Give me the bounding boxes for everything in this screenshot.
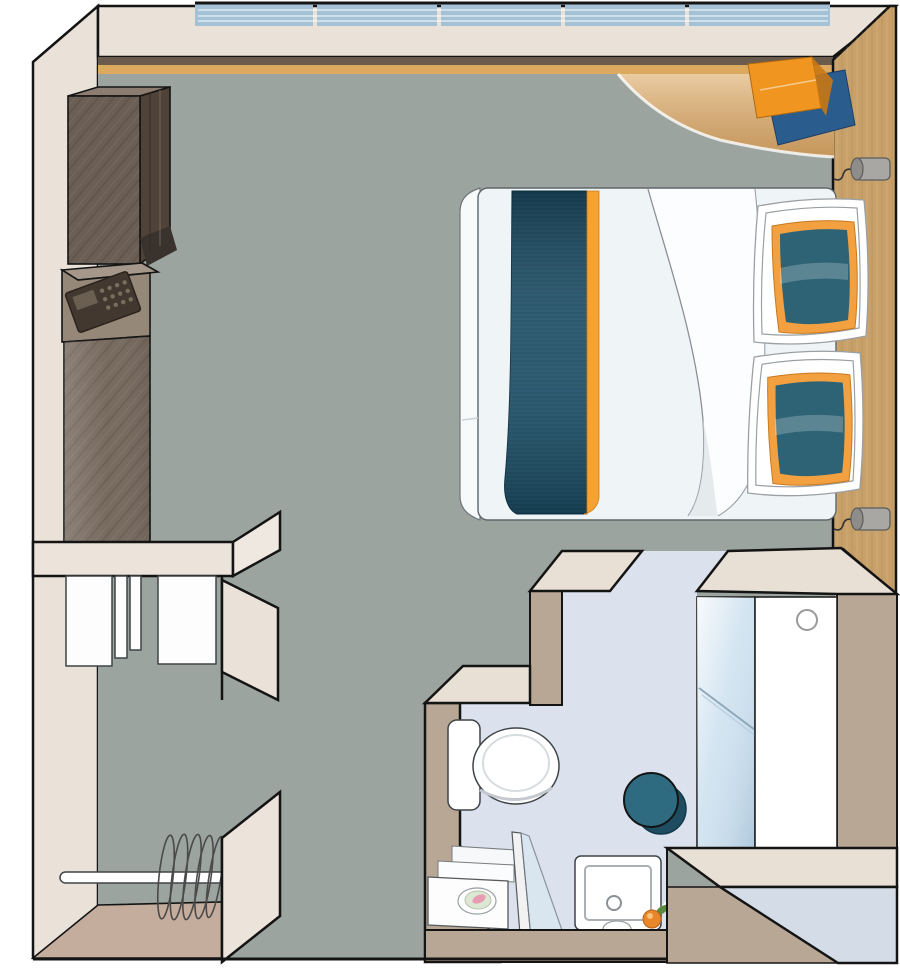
window-pane xyxy=(441,4,561,26)
clothes-rod xyxy=(60,872,228,883)
window-pane xyxy=(689,4,830,26)
closet-shelf xyxy=(130,576,141,650)
lamp-cap xyxy=(851,508,863,530)
lamp-cap xyxy=(851,158,863,180)
bed-foot-face xyxy=(460,188,480,520)
closet-top-band xyxy=(33,542,233,576)
pillow-set-top xyxy=(754,199,869,344)
bath-wall-right xyxy=(837,594,897,887)
floor-plan-drawing xyxy=(0,0,900,970)
bath-wall-face-upper xyxy=(530,591,562,705)
tv-cabinet xyxy=(68,87,177,266)
stool-seat xyxy=(624,773,678,827)
bed-runner-shade xyxy=(505,191,587,514)
bathroom-door xyxy=(755,597,837,850)
closet-shelf xyxy=(115,576,127,658)
closet-shelf xyxy=(158,576,216,664)
towel-orange xyxy=(748,57,822,118)
pillow-set-bottom xyxy=(747,350,864,497)
window-pane xyxy=(195,4,313,26)
closet-shelf xyxy=(66,576,112,666)
floor-plan-stage xyxy=(0,0,900,970)
wardrobe-panel xyxy=(64,336,150,556)
window-pane xyxy=(565,4,685,26)
safe xyxy=(62,263,158,342)
cabinet-hatch xyxy=(68,96,140,264)
wardrobe-sheen xyxy=(64,336,150,556)
sill-strip-wood xyxy=(98,65,833,74)
window-pane xyxy=(317,4,437,26)
sill-strip-dark xyxy=(98,57,833,65)
shower-drain-icon xyxy=(607,896,621,910)
bath-wall-bottom xyxy=(425,930,667,962)
panoramic-window xyxy=(195,3,830,26)
